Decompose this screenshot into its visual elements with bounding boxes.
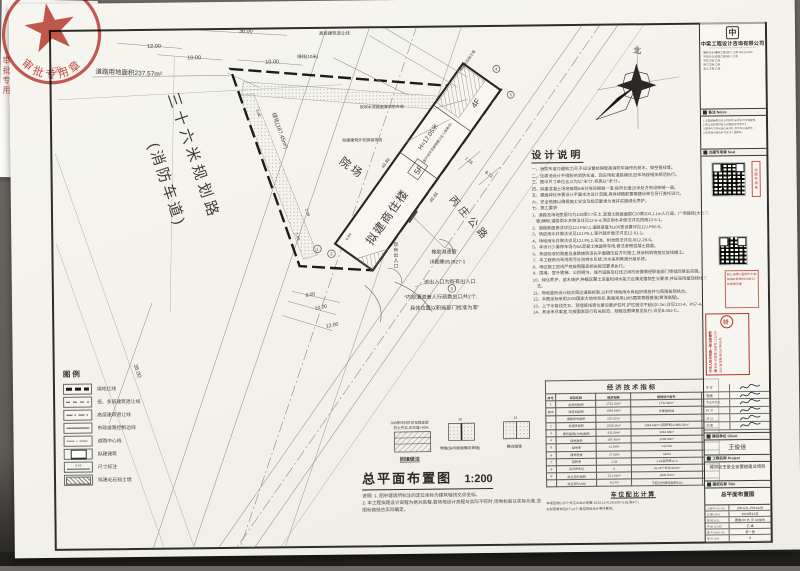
section-square-icon xyxy=(703,151,707,155)
legend-swatch-solid xyxy=(63,422,92,433)
notes-section-bar: 备注 Notes xyxy=(701,108,766,117)
client-bar: 建设单位 Client xyxy=(705,432,770,441)
legend-dim-icon: 8.62 xyxy=(66,465,90,470)
legend-swatch-dim: 8.62 xyxy=(64,461,93,472)
svg-text:4: 4 xyxy=(495,66,498,71)
dim-36-top: 36.00 xyxy=(239,29,253,35)
info-row-value: 乙 级 xyxy=(730,523,771,528)
legend-item-label: 高层建筑退让线 xyxy=(97,411,131,418)
company-block: 中 中梁工程设计咨询有限公司 ZHONGLIANG ENGINEERING DE… xyxy=(700,26,766,71)
dim-208: 2.08 xyxy=(304,208,311,218)
info-row-value: 0 xyxy=(730,536,771,540)
planned-road-label2: (消防车道) xyxy=(144,141,188,230)
info-row: 版 次 VER.0 xyxy=(706,535,771,542)
north-label: 北 xyxy=(633,46,641,55)
legend-item-label: 低、多层建筑退让线 xyxy=(97,398,140,405)
dim-8: 8.00 xyxy=(305,291,316,299)
section-square-icon xyxy=(707,457,711,461)
detail-joint-2: 14 横向缩缝 xyxy=(503,416,529,449)
dim-12-top: 12.00 xyxy=(147,44,161,50)
info-row-value: 2023年12月 xyxy=(729,511,770,516)
dim-10: 10.00 xyxy=(314,304,328,312)
legend-wall-icon xyxy=(66,476,91,484)
green-line-label: 绿线(10米) xyxy=(297,53,319,60)
legend-item-label: 尺寸标注 xyxy=(98,463,117,470)
backfill-note-2: 夯土夯实,压实度>93% xyxy=(393,425,429,430)
legend-item-label: 拟建毛石挡土墙 xyxy=(98,476,132,483)
joint1-dim: 20 xyxy=(458,417,462,421)
courtyard-label: 院场 xyxy=(337,154,368,182)
passage-note-1: “内部通道兼人行疏散出口共2个, xyxy=(404,292,478,301)
joint1-label: 伸缝(纵向缩缝横向伸缝) xyxy=(440,445,481,450)
titleblock-note-line: 4.如有疑问请及时与设计人员联系。 xyxy=(703,131,765,136)
legend-item: 拟建毛石挡土墙 xyxy=(64,472,202,487)
page-title: 总平面布置图 xyxy=(362,470,452,486)
signature-role-label: 设 计 xyxy=(704,415,730,422)
exit-note: 该出入口为既有出入口 xyxy=(424,277,476,286)
svg-text:1: 1 xyxy=(316,246,319,251)
joint2-dim: 14 xyxy=(513,416,517,420)
info-row-value: 建施-06 共 页 A0加长 xyxy=(729,517,770,522)
plan-note-line: 2. 本工程拟建设计高程为绝对高程,若场地设计高程与实际不符时,场地标高以实际为… xyxy=(362,498,542,514)
existing-road-label: 现状水泥路面兼消防车道 xyxy=(360,103,404,109)
info-row-value: 第一张 xyxy=(730,529,771,534)
stamp-number: (2) xyxy=(51,65,63,76)
econ-cell: 不超过总建筑面积50% xyxy=(632,478,702,486)
section-square-icon xyxy=(703,111,707,115)
legend-item-label: 市政道路控制边线 xyxy=(97,424,135,431)
signature-role-label: 制 图 xyxy=(704,422,730,429)
legend-item-label: 拟建建筑 xyxy=(98,450,117,457)
company-logo: 中 xyxy=(726,26,739,39)
info-row-label: 工程号 PRJ.NO xyxy=(705,505,729,510)
info-row-value: ZW-CZL-2021A28 xyxy=(729,505,770,509)
svg-text:2: 2 xyxy=(330,251,333,256)
legend-title: 图例 xyxy=(63,367,201,380)
svg-text:5: 5 xyxy=(510,92,513,97)
joint2-label: 横向缩缝 xyxy=(507,444,522,449)
legend-line-icon xyxy=(66,402,89,403)
legend-swatch-wall xyxy=(64,474,93,485)
econ-cell: 8.27% xyxy=(597,479,632,487)
design-notes: 设计说明 一、消防车道与建筑之间,不应设置妨碍登高消防车操作的树木、架空管线等。… xyxy=(531,143,713,316)
drawing-name: 总平面布置图 xyxy=(705,490,770,499)
legend-building-icon xyxy=(70,449,86,459)
credential-line: 岩土工程 乙级 xyxy=(703,66,762,71)
review-stamp: 四川省施工图设计文件审查专用章2023年12月审查合格 xyxy=(725,270,759,308)
section-square-icon xyxy=(707,435,711,439)
qr-code-1 xyxy=(711,162,745,196)
client-name: 王俊佳 xyxy=(705,442,770,452)
detail-joint-1: 20 伸缝(纵向缩缝横向伸缝) xyxy=(439,417,481,450)
info-row-label: 图 幅 SIZE xyxy=(705,517,729,522)
speed-bump-ref: 详图集05J927-1 xyxy=(430,258,466,265)
legend-swatch-dash xyxy=(63,396,92,407)
legend: 图例 用地红线低、多层建筑退让线高层建筑退让线市政道路控制边线道路中心线拟建建筑… xyxy=(63,367,202,487)
backfill-label: 回填做法 xyxy=(400,456,420,463)
legend-line-icon xyxy=(66,415,89,416)
legend-dim-line xyxy=(67,468,90,469)
dim-872: 8.72 xyxy=(484,170,494,179)
project-bar: 工程名称 Project xyxy=(705,454,770,463)
detail-backfill: 200厚块石挤淤至稳定层 夯土夯实,压实度>93% 回填做法 xyxy=(390,420,430,463)
qr-code-2 xyxy=(718,236,747,265)
stamp-star-icon xyxy=(21,0,78,54)
drawing-scale: 1:200 xyxy=(464,473,492,485)
signature-role-label: 专业负责人 xyxy=(704,399,730,406)
legend-swatch-dashdot xyxy=(63,409,92,420)
project-name: 城郊区王俊业安置楼建设项目 xyxy=(705,464,770,471)
legend-swatch-building xyxy=(64,448,93,459)
info-row-label: 图 号 DWG.NO xyxy=(706,530,730,535)
company-name-en: ZHONGLIANG ENGINEERING DESIGN CONSULTING… xyxy=(703,47,762,49)
drawing-name-bar: 图纸名称 Title xyxy=(705,480,770,489)
speed-bump-label: 橡胶减速挡 xyxy=(431,248,456,255)
signature-role-label: 审 定 xyxy=(704,384,730,391)
seal-side-stamp: 出图专用章 xyxy=(751,161,760,197)
north-compass: 北 xyxy=(595,45,680,130)
legend-item-label: 用地红线 xyxy=(97,385,116,392)
dim-10b-top: 10.00 xyxy=(265,59,279,65)
legend-line-icon xyxy=(66,428,89,429)
legend-item-label: 道路中心线 xyxy=(98,437,122,444)
stamp-fragment: 审批专用 xyxy=(0,56,12,108)
legend-swatch-redline xyxy=(63,384,92,395)
signature-role-label: 校 对 xyxy=(704,407,730,414)
dim-12: 12.00 xyxy=(326,322,340,330)
main-title-block: 总平面布置图 1:200 说明: 1. 图中建筑所标注的定位坐标为建筑轴线交点坐… xyxy=(362,466,553,514)
signature-scribble xyxy=(730,421,769,429)
signature-role-label: 审 核 xyxy=(704,392,730,399)
dim-building-lower: 40.86 xyxy=(428,191,439,203)
highway-label: 丙庄公路 xyxy=(447,193,493,244)
signature-row: 制 图 xyxy=(704,422,769,430)
entrance-existing-label: 现有出入口 xyxy=(393,242,398,270)
economic-indicator-panel: 经济技术指标 序号项目名称经济指标规划设计条件备注 1总用地面积1732.20m… xyxy=(545,378,720,511)
setback-low-label: 低、多层建筑退让线 xyxy=(313,17,353,24)
info-row-label: 日 期 DATE xyxy=(705,511,729,516)
outline-label: 拟建建筑外轮廓装饰线 xyxy=(342,136,382,142)
info-row-label: 等 级 CLASS xyxy=(706,524,730,529)
title-block: 中 中梁工程设计咨询有限公司 ZHONGLIANG ENGINEERING DE… xyxy=(699,22,771,542)
svg-text:3: 3 xyxy=(451,286,454,291)
economic-indicator-table: 经济技术指标 序号项目名称经济指标规划设计条件备注 1总用地面积1732.20m… xyxy=(545,378,720,487)
dim-10-top: 10.00 xyxy=(187,55,201,61)
legend-swatch-centerline xyxy=(64,435,93,446)
legend-line-icon xyxy=(66,388,89,390)
table-row: 商业部分占比8.27%不超过总建筑面积50% xyxy=(547,478,720,487)
setback-high-label: 高层建筑退让线 xyxy=(319,30,350,37)
econ-cell: 商业部分占比 xyxy=(557,480,597,488)
design-notes-title: 设计说明 xyxy=(531,146,583,164)
section-square-icon xyxy=(707,483,711,487)
passage-note-2: 具体位置以职能部门批准为准” xyxy=(410,303,480,312)
backfill-note-1: 200厚块石挤淤至稳定层 xyxy=(390,420,429,425)
legend-line-icon xyxy=(67,441,90,442)
architect-registration-stamp: 中华人民共和国一级注册建筑师 姓名:华俊康 注册号:1312X5-082 有效期… xyxy=(705,313,750,375)
architect-round-seal: 章 xyxy=(720,315,733,328)
seal-section-bar: 出图专用章 Seal xyxy=(701,148,766,157)
info-row-label: 版 次 VER. xyxy=(706,536,730,541)
